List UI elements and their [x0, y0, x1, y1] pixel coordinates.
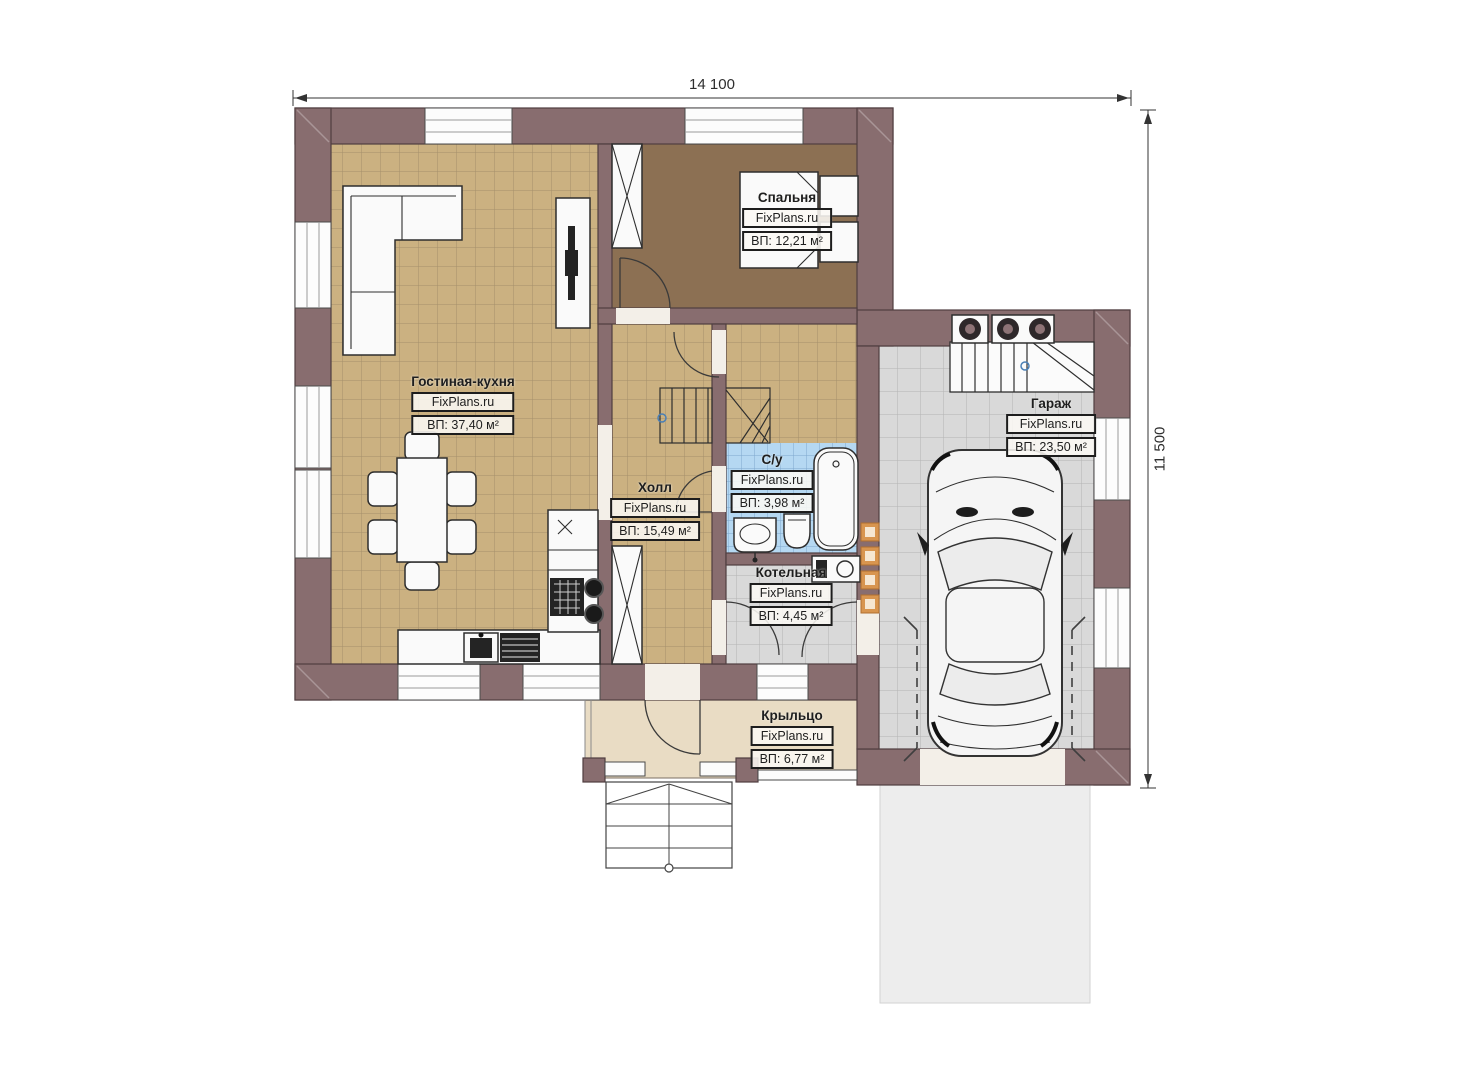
- room-name: Котельная: [750, 565, 833, 580]
- dimension-width-label: 14 100: [689, 76, 735, 93]
- room-watermark: FixPlans.ru: [751, 726, 834, 746]
- room-label-bathroom: С/у FixPlans.ru ВП: 3,98 м²: [731, 452, 814, 513]
- room-name: Спальня: [742, 190, 832, 205]
- gas-equipment: [952, 315, 1054, 343]
- room-area: ВП: 3,98 м²: [731, 493, 814, 513]
- room-label-garage: Гараж FixPlans.ru ВП: 23,50 м²: [1006, 396, 1096, 457]
- dishwasher: [500, 633, 540, 662]
- driveway: [880, 785, 1090, 1003]
- room-label-bedroom: Спальня FixPlans.ru ВП: 12,21 м²: [742, 190, 832, 251]
- room-name: Крыльцо: [751, 708, 834, 723]
- vent-shaft: [612, 144, 642, 248]
- bathtub: [814, 448, 858, 550]
- window: [295, 222, 331, 308]
- hall-upper-floor: [726, 324, 857, 443]
- window: [425, 108, 512, 144]
- room-watermark: FixPlans.ru: [742, 208, 832, 228]
- room-name: Гараж: [1006, 396, 1096, 411]
- floor-plan-canvas: 14 100 11 500 Гостиная-кухня FixPlans.ru…: [0, 0, 1473, 1080]
- window: [1094, 588, 1130, 668]
- toilet: [784, 514, 810, 548]
- room-watermark: FixPlans.ru: [610, 498, 700, 518]
- room-name: Холл: [610, 480, 700, 495]
- window: [295, 386, 331, 468]
- room-label-hall: Холл FixPlans.ru ВП: 15,49 м²: [610, 480, 700, 541]
- window: [685, 108, 803, 144]
- room-watermark: FixPlans.ru: [1006, 414, 1096, 434]
- dimension-height-label: 11 500: [1152, 427, 1169, 472]
- room-label-boiler: Котельная FixPlans.ru ВП: 4,45 м²: [750, 565, 833, 626]
- window: [295, 470, 331, 558]
- room-name: Гостиная-кухня: [411, 374, 514, 389]
- room-watermark: FixPlans.ru: [411, 392, 514, 412]
- garage-stairs: [950, 342, 1094, 392]
- room-label-porch: Крыльцо FixPlans.ru ВП: 6,77 м²: [751, 708, 834, 769]
- room-watermark: FixPlans.ru: [750, 583, 833, 603]
- kitchen-sink: [464, 633, 498, 663]
- window: [1094, 418, 1130, 500]
- room-label-living-kitchen: Гостиная-кухня FixPlans.ru ВП: 37,40 м²: [411, 374, 514, 435]
- window: [398, 664, 480, 700]
- room-area: ВП: 6,77 м²: [751, 749, 834, 769]
- window: [757, 664, 808, 700]
- window: [523, 664, 600, 700]
- floor-plan-drawing: [0, 0, 1473, 1080]
- room-area: ВП: 37,40 м²: [411, 415, 514, 435]
- room-area: ВП: 23,50 м²: [1006, 437, 1096, 457]
- vent-shaft: [612, 546, 642, 664]
- room-area: ВП: 4,45 м²: [750, 606, 833, 626]
- entry-steps: [606, 782, 732, 872]
- room-area: ВП: 15,49 м²: [610, 521, 700, 541]
- room-name: С/у: [731, 452, 814, 467]
- room-watermark: FixPlans.ru: [731, 470, 814, 490]
- room-area: ВП: 12,21 м²: [742, 231, 832, 251]
- tv-cabinet: [556, 198, 590, 328]
- car: [917, 450, 1073, 756]
